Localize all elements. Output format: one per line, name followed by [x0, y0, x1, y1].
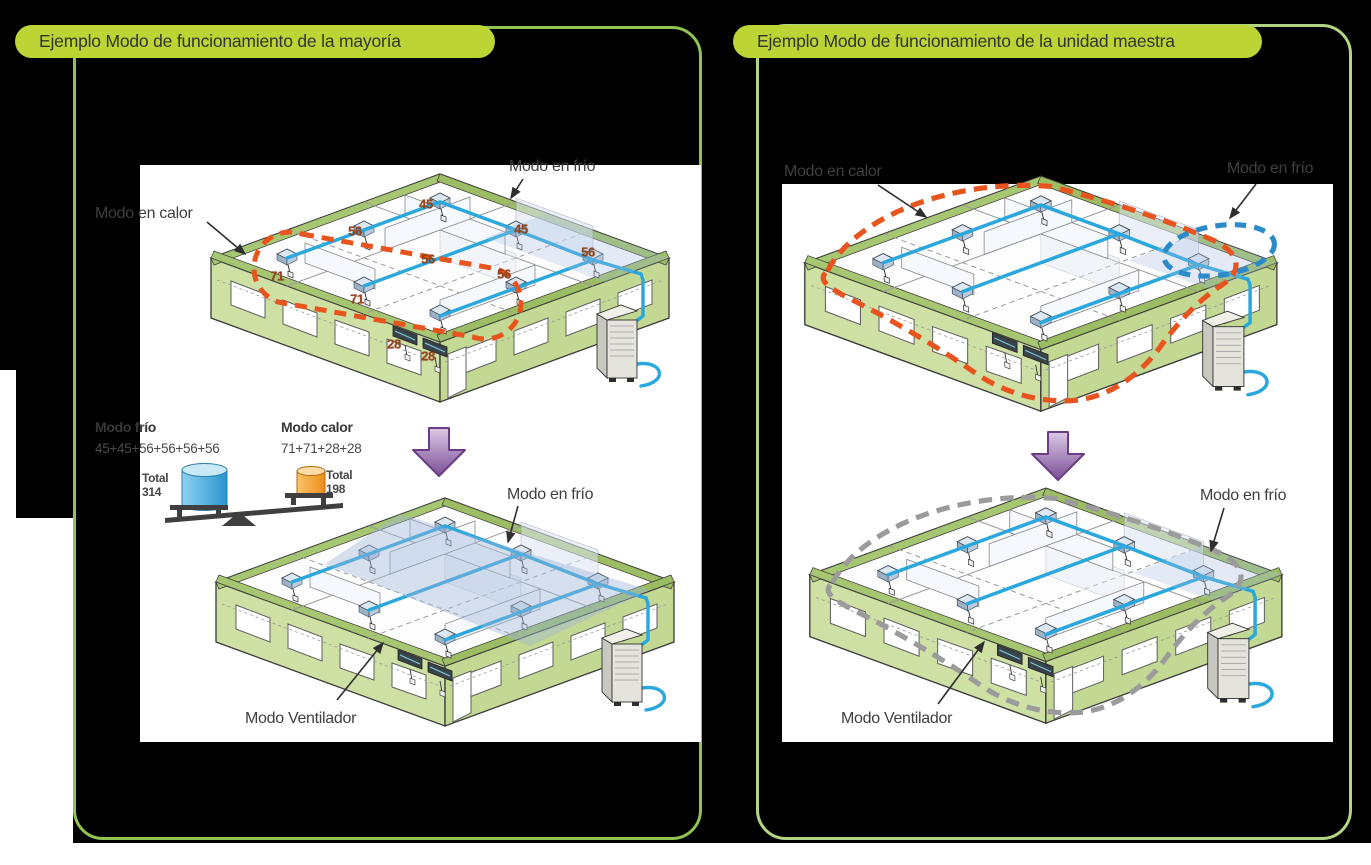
right-header-badge: Ejemplo Modo de funcionamiento de la uni…: [733, 25, 1262, 58]
right-transition-arrow: [1031, 430, 1085, 482]
load-badge: 56: [421, 252, 435, 267]
load-badge: 28: [387, 337, 401, 352]
cool-cylinder: [182, 464, 227, 511]
balance-scale: [135, 456, 395, 542]
page-margin-bottom: [0, 843, 1371, 865]
load-badge: 71: [350, 292, 364, 307]
cool-mode-label: Modo en frío: [507, 486, 593, 504]
left-header-label: Ejemplo Modo de funcionamiento de la may…: [39, 31, 401, 52]
figure-canvas: Ejemplo Modo de funcionamiento de la may…: [0, 0, 1371, 865]
cool-sum-value: 45+45+56+56+56+56: [95, 441, 219, 456]
left-header-badge: Ejemplo Modo de funcionamiento de la may…: [15, 25, 495, 58]
load-badge: 71: [270, 269, 284, 284]
cool-mode-label: Modo en frío: [1227, 160, 1313, 178]
load-badge: 56: [497, 267, 511, 282]
cool-mode-label: Modo en frío: [509, 158, 595, 176]
cool-sum-title: Modo frío: [95, 419, 156, 435]
left-transition-arrow: [412, 426, 466, 478]
right-header-label: Ejemplo Modo de funcionamiento de la uni…: [757, 31, 1175, 52]
load-badge: 45: [419, 197, 433, 212]
left-top-building: [205, 168, 685, 428]
load-badge: 28: [421, 349, 435, 364]
heat-sum-value: 71+71+28+28: [281, 441, 361, 456]
heat-cylinder: [297, 467, 325, 498]
heat-mode-label: Modo en calor: [95, 205, 193, 223]
heat-total-label: Total 198: [326, 468, 352, 496]
heat-sum-title: Modo calor: [281, 419, 353, 435]
load-badge: 45: [514, 222, 528, 237]
cool-total-label: Total 314: [142, 471, 168, 499]
cool-mode-label: Modo en frío: [1200, 487, 1286, 505]
page-margin-strip: [0, 370, 16, 518]
down-arrow-icon: [1032, 432, 1084, 480]
load-badge: 56: [581, 245, 595, 260]
fan-mode-label: Modo Ventilador: [841, 710, 952, 728]
load-badge: 56: [348, 224, 362, 239]
right-top-building: [798, 170, 1294, 438]
heat-mode-label: Modo en calor: [784, 163, 882, 181]
fan-mode-label: Modo Ventilador: [245, 710, 356, 728]
down-arrow-icon: [413, 428, 465, 476]
page-margin-left: [0, 518, 73, 843]
